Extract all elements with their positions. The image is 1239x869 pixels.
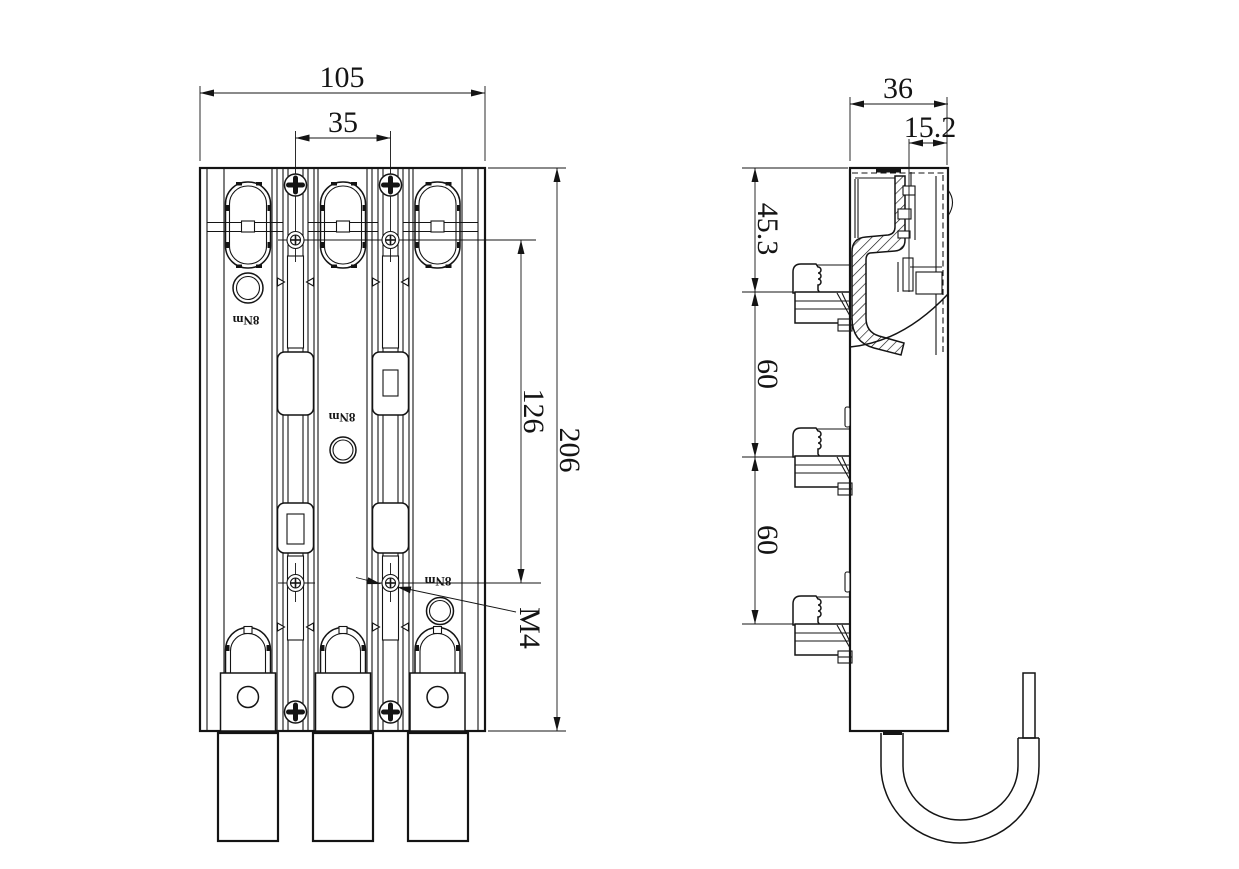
torque-label-2: 8Nm xyxy=(328,410,355,425)
bare-wire xyxy=(1023,673,1035,738)
terminal-blocks xyxy=(221,673,466,731)
torque-label-1: 8Nm xyxy=(232,313,259,328)
dim-pole-pitch: 35 xyxy=(296,106,391,142)
rail-edge xyxy=(876,168,901,173)
din-claw-1 xyxy=(793,264,852,331)
svg-text:35: 35 xyxy=(328,106,358,139)
side-view: 36 15.2 45.3 60 60 xyxy=(742,72,1039,843)
svg-text:60: 60 xyxy=(751,525,784,555)
dim-fixing-span: 126 xyxy=(517,240,550,583)
svg-text:M4: M4 xyxy=(513,607,546,649)
edge-nub xyxy=(845,407,850,427)
bottom-arches xyxy=(226,627,461,674)
svg-text:206: 206 xyxy=(553,428,586,473)
din-claw-2 xyxy=(793,428,852,495)
svg-text:60: 60 xyxy=(751,359,784,389)
din-claw-3 xyxy=(793,596,852,663)
cables xyxy=(218,733,468,841)
drawing-canvas: 8Nm 8Nm 8Nm 105 35 206 126 M4 xyxy=(0,0,1239,869)
dim-claw-pitch-1: 60 xyxy=(742,292,793,457)
busbar-cross-section xyxy=(852,176,905,355)
technical-drawing: 8Nm 8Nm 8Nm 105 35 206 126 M4 xyxy=(0,0,1239,869)
torque-label-3: 8Nm xyxy=(424,574,451,589)
cable-loop xyxy=(881,673,1039,843)
front-view: 8Nm 8Nm 8Nm 105 35 206 126 M4 xyxy=(200,61,586,841)
dim-claw-pitch-2: 60 xyxy=(742,457,793,624)
svg-text:105: 105 xyxy=(320,61,365,94)
svg-text:126: 126 xyxy=(517,389,550,434)
svg-text:36: 36 xyxy=(883,72,913,105)
svg-text:45.3: 45.3 xyxy=(751,203,784,256)
svg-text:15.2: 15.2 xyxy=(904,111,957,144)
edge-nub xyxy=(845,572,850,592)
contact-section xyxy=(903,258,913,291)
